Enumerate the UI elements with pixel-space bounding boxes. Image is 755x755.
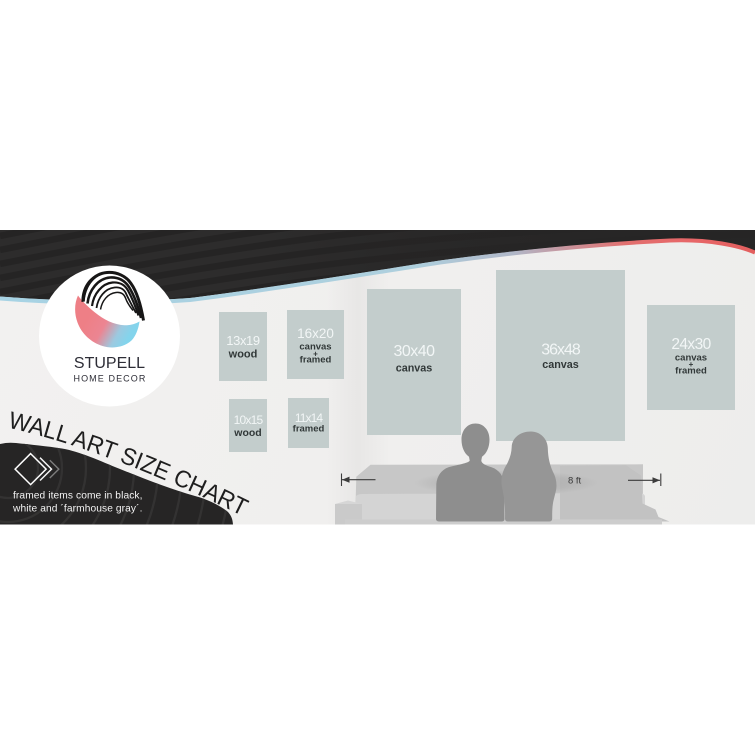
- svg-text:canvas: canvas: [396, 363, 433, 375]
- svg-text:13x19: 13x19: [226, 333, 260, 348]
- svg-text:10x15: 10x15: [234, 413, 264, 427]
- svg-text:24x30: 24x30: [671, 336, 711, 353]
- svg-text:framed: framed: [300, 355, 332, 366]
- svg-text:30x40: 30x40: [393, 343, 435, 360]
- svg-text:framed items come in black,: framed items come in black,: [13, 491, 143, 502]
- svg-text:wood: wood: [233, 427, 261, 439]
- svg-text:framed: framed: [675, 366, 707, 377]
- svg-text:canvas: canvas: [542, 359, 579, 371]
- svg-text:HOME DECOR: HOME DECOR: [73, 374, 146, 384]
- svg-text:framed: framed: [293, 424, 325, 435]
- svg-text:wood: wood: [228, 349, 258, 361]
- svg-text:white and ´farmhouse gray´.: white and ´farmhouse gray´.: [12, 503, 143, 515]
- svg-text:16x20: 16x20: [297, 326, 334, 341]
- svg-text:36x48: 36x48: [541, 342, 581, 359]
- svg-text:STUPELL: STUPELL: [74, 355, 145, 372]
- svg-text:8 ft: 8 ft: [568, 476, 582, 487]
